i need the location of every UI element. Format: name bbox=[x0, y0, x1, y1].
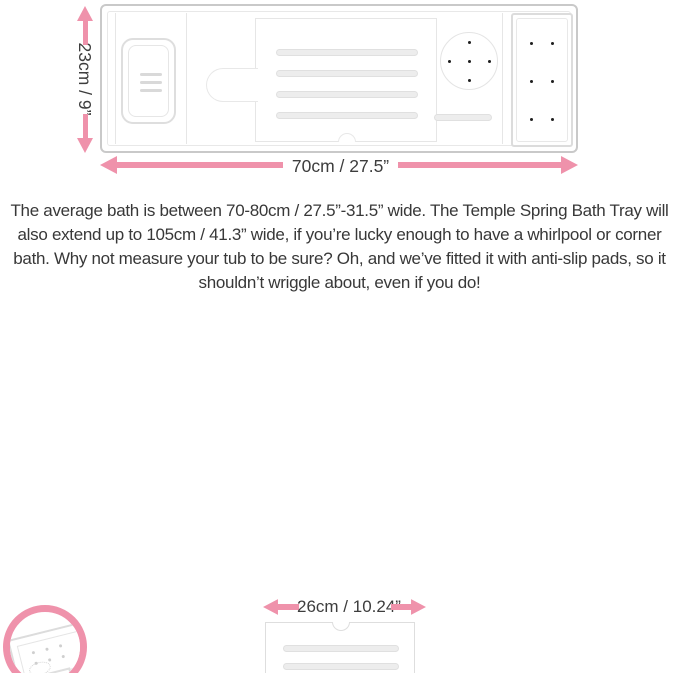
book-rest-notch bbox=[332, 622, 350, 631]
bath-tray-top-view bbox=[100, 4, 578, 153]
top-dimension-diagram: 23cm / 9” bbox=[0, 0, 679, 190]
dimension-line bbox=[398, 162, 562, 168]
book-rest-flat bbox=[255, 18, 437, 142]
book-rest-slot bbox=[276, 91, 418, 98]
handle-cutout bbox=[206, 68, 258, 102]
height-dimension-label: 23cm / 9” bbox=[75, 42, 95, 116]
dimension-line bbox=[115, 162, 283, 168]
side-slot bbox=[434, 114, 492, 121]
book-rest-slot bbox=[276, 112, 418, 119]
book-rest-slot bbox=[283, 663, 399, 670]
dimension-line bbox=[83, 114, 88, 140]
book-rest-raised bbox=[265, 622, 415, 673]
width-dimension-label: 70cm / 27.5” bbox=[283, 156, 398, 177]
drain-panel-inner bbox=[516, 18, 568, 142]
soap-dish-slot bbox=[140, 89, 162, 92]
product-infographic: 23cm / 9” bbox=[0, 0, 679, 673]
tray-divider bbox=[502, 13, 503, 144]
soap-dish bbox=[121, 38, 176, 124]
paragraph-line: The average bath is between 70-80cm / 27… bbox=[0, 199, 679, 223]
soap-dish-inner bbox=[128, 45, 169, 117]
textured-pad bbox=[28, 660, 52, 673]
tray-corner-detail bbox=[7, 617, 87, 673]
tray-divider bbox=[186, 13, 187, 144]
description-paragraph: The average bath is between 70-80cm / 27… bbox=[0, 199, 679, 295]
book-rest-slot bbox=[276, 70, 418, 77]
drain-hole bbox=[530, 42, 533, 45]
drain-hole bbox=[468, 60, 471, 63]
book-rest-notch bbox=[338, 133, 356, 142]
paragraph-line: bath. Why not measure your tub to be sur… bbox=[0, 247, 679, 271]
book-rest-slot bbox=[283, 645, 399, 652]
soap-dish-slot bbox=[140, 73, 162, 76]
arrow-down-icon bbox=[77, 138, 93, 153]
extended-tray-diagram: 26cm / 10.24” Anti-slip pads bbox=[0, 295, 679, 560]
anti-slip-pad bbox=[32, 651, 36, 655]
book-rest-slot bbox=[276, 49, 418, 56]
soap-dish-slot bbox=[140, 81, 162, 84]
cup-holder bbox=[440, 32, 498, 90]
drain-panel bbox=[511, 13, 573, 147]
tray-rail bbox=[115, 13, 116, 144]
paragraph-line: also extend up to 105cm / 41.3” wide, if… bbox=[0, 223, 679, 247]
pad-tray-inner bbox=[17, 627, 87, 673]
arrow-right-icon bbox=[561, 156, 578, 174]
paragraph-line: shouldn’t wriggle about, even if you do! bbox=[0, 271, 679, 295]
